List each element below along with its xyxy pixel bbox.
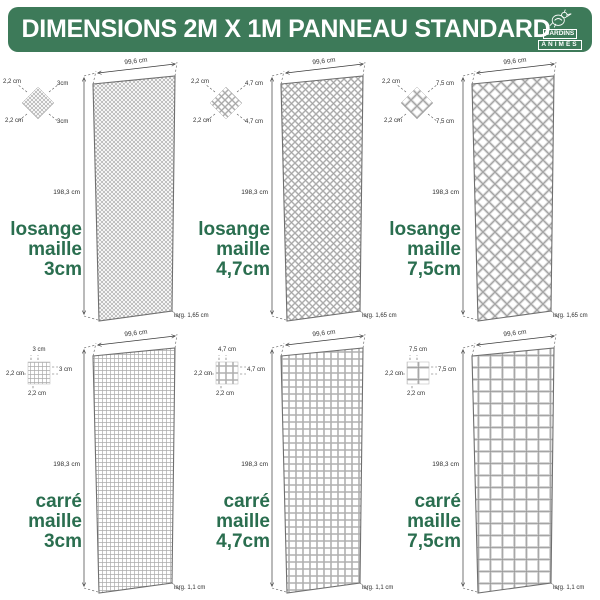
diagram-losange-maille-47cm: 99,6 cm 198,3 cm larg. 1,65 cm 2,2 cm 4,… [190,58,386,326]
mesh-lath-label: 2,2 cm [204,391,246,398]
mesh-size-label: 3 cm [59,367,91,374]
thickness-label: larg. 1,65 cm [553,313,600,320]
mesh-lath-label: 2,2 cm [383,118,402,125]
jardins-animes-logo: JARDINS ANIMÉS [534,9,586,50]
mesh-size-label: 4,7 cm [206,347,248,354]
header-bar: DIMENSIONS 2M X 1M PANNEAU STANDARD JARD… [8,7,592,52]
mesh-size-label: 7,5 cm [438,367,470,374]
losange-mesh-detail-icon [17,84,59,122]
panel-title: losange maille 4,7cm [190,220,270,280]
mesh-size-label: 3cm [57,81,89,88]
mesh-lath-label: 2,2 cm [192,118,211,125]
mesh-lath-label: 2,2 cm [4,118,23,125]
mesh-lath-label: 2,2 cm [16,391,58,398]
height-dimension-label: 198,3 cm [220,189,268,196]
losange-mesh-detail-icon [205,84,247,122]
mesh-size-label: 4,7 cm [245,81,277,88]
height-dimension-label: 198,3 cm [32,189,80,196]
mesh-size-label: 7,5 cm [436,119,468,126]
mesh-lath-label: 2,2 cm [381,371,403,378]
carre-mesh-detail-icon [398,355,437,391]
panel-title: carré maille 7,5cm [381,492,461,552]
height-dimension-label: 198,3 cm [411,461,459,468]
mesh-lath-label: 2,2 cm [395,391,437,398]
mesh-size-label: 3 cm [18,347,60,354]
diagram-losange-maille-3cm: 99,6 cm 198,3 cm larg. 1,65 cm 2,2 cm 3c… [2,58,198,326]
logo-text-animes: ANIMÉS [538,40,581,50]
mesh-size-label: 7,5 cm [397,347,439,354]
page-title: DIMENSIONS 2M X 1M PANNEAU STANDARD [22,15,551,44]
mesh-size-label: 4,7 cm [247,367,279,374]
mesh-lath-label: 2,2 cm [381,79,400,86]
losange-mesh-detail-icon [396,84,438,122]
mesh-lath-label: 2,2 cm [190,79,209,86]
diagram-carre-maille-3cm: 99,6 cm 198,3 cm larg. 1,1 cm 3 cm 3 cm … [2,330,198,598]
carre-mesh-detail-icon [19,355,58,391]
mesh-size-label: 3cm [57,119,89,126]
diagram-carre-maille-75cm: 99,6 cm 198,3 cm larg. 1,1 cm 7,5 cm 7,5… [381,330,577,598]
mesh-lath-label: 2,2 cm [2,371,24,378]
diagram-carre-maille-47cm: 99,6 cm 198,3 cm larg. 1,1 cm 4,7 cm 4,7… [190,330,386,598]
mesh-lath-label: 2,2 cm [190,371,212,378]
height-dimension-label: 198,3 cm [220,461,268,468]
mesh-size-label: 7,5 cm [436,81,468,88]
panel-title: carré maille 4,7cm [190,492,270,552]
diagram-losange-maille-75cm: 99,6 cm 198,3 cm larg. 1,65 cm 2,2 cm 7,… [381,58,577,326]
mesh-size-label: 4,7 cm [245,119,277,126]
thickness-label: larg. 1,1 cm [553,585,600,592]
mesh-lath-label: 2,2 cm [2,79,21,86]
panel-title: carré maille 3cm [2,492,82,552]
logo-text-jardins: JARDINS [543,29,578,39]
panel-title: losange maille 3cm [2,220,82,280]
bird-icon [545,9,575,28]
panel-title: losange maille 7,5cm [381,220,461,280]
height-dimension-label: 198,3 cm [411,189,459,196]
height-dimension-label: 198,3 cm [32,461,80,468]
carre-mesh-detail-icon [207,355,246,391]
